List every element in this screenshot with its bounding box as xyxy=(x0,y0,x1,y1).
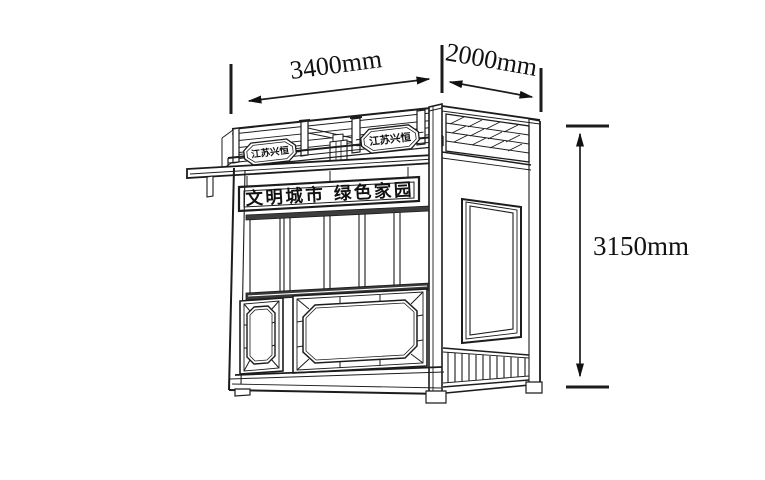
kiosk-elevation-drawing: 3400mm 2000mm 3150mm xyxy=(0,0,765,480)
lattice-panel-right xyxy=(293,289,427,373)
depth-dimension: 2000mm xyxy=(442,37,541,112)
front-right-column xyxy=(429,104,442,394)
foot-front-right xyxy=(426,391,446,403)
width-dimension-label: 3400mm xyxy=(288,44,383,85)
side-balusters xyxy=(443,348,529,387)
kiosk-structure: 江苏兴恒 江苏兴恒 文明城市 绿色家园 xyxy=(187,104,542,403)
depth-dim-arrow xyxy=(450,82,532,97)
width-dimension: 3400mm xyxy=(231,44,429,114)
depth-dimension-label: 2000mm xyxy=(443,37,539,82)
drawing-canvas: 3400mm 2000mm 3150mm xyxy=(0,0,765,480)
foot-left xyxy=(235,389,250,396)
front-left-column xyxy=(229,168,234,390)
foot-back-right xyxy=(526,382,542,393)
side-display-panel xyxy=(462,199,521,343)
side-louver-panel xyxy=(442,106,540,170)
lattice-panel-left xyxy=(240,298,283,374)
window-mullions xyxy=(250,212,400,293)
right-plaque: 江苏兴恒 xyxy=(355,123,425,155)
canopy-support xyxy=(207,176,213,197)
height-dimension-label: 3150mm xyxy=(593,231,689,261)
height-dimension: 3150mm xyxy=(566,126,689,387)
front-windows xyxy=(246,206,429,300)
fence-post xyxy=(352,118,360,153)
main-sign-board: 文明城市 绿色家园 xyxy=(239,177,419,211)
base xyxy=(229,367,542,403)
width-dim-arrow xyxy=(249,79,429,101)
